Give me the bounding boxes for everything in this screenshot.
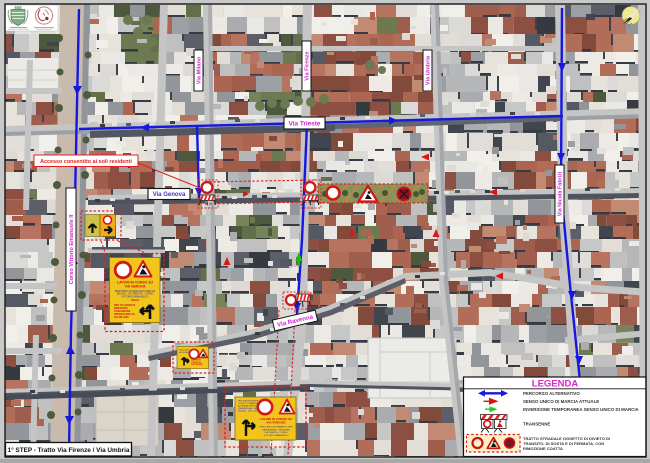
svg-text:VIA RAVENNA - VIA MILANO: VIA RAVENNA - VIA MILANO — [262, 428, 291, 431]
svg-text:Accesso consentito ai soli res: Accesso consentito ai soli residenti — [40, 159, 132, 165]
svg-text:INVERSIONE TEMPORANEA SENSO UN: INVERSIONE TEMPORANEA SENSO UNICO DI MAR… — [523, 407, 640, 412]
svg-text:VITTORIO EMANUELE II: VITTORIO EMANUELE II — [264, 434, 289, 437]
svg-text:1° STEP - Tratto Via Firenze /: 1° STEP - Tratto Via Firenze / Via Umbri… — [8, 446, 130, 454]
svg-text:VITTORIO EMANUELE II: VITTORIO EMANUELE II — [121, 295, 148, 298]
svg-text:RIMOZIONE COATTA: RIMOZIONE COATTA — [523, 446, 563, 451]
svg-text:Via Umbria: Via Umbria — [426, 55, 432, 85]
svg-text:VIA MILANO: VIA MILANO — [114, 316, 129, 319]
svg-text:VIA GENOVA: VIA GENOVA — [125, 284, 146, 288]
svg-text:VIA TRIESTE - CORSO: VIA TRIESTE - CORSO — [264, 431, 287, 434]
svg-text:TRANSENNE: TRANSENNE — [523, 422, 550, 427]
svg-text:Via Trieste: Via Trieste — [289, 120, 321, 127]
svg-text:SEGUI: SEGUI — [131, 298, 139, 302]
svg-text:VIA FIRENZE: VIA FIRENZE — [266, 421, 285, 425]
svg-text:SENSO UNICO DI MARCIA ATTUALE: SENSO UNICO DI MARCIA ATTUALE — [523, 399, 599, 404]
svg-text:PERCORSO ALTERNATIVO PER: PERCORSO ALTERNATIVO PER — [260, 426, 293, 429]
svg-text:Via Genova: Via Genova — [153, 192, 186, 198]
svg-text:VIA FIRENZE: VIA FIRENZE — [191, 363, 203, 366]
svg-text:PERCORSO ALTERNATIVO: PERCORSO ALTERNATIVO — [523, 391, 580, 396]
svg-text:Via Firenze: Via Firenze — [305, 51, 311, 80]
svg-text:Corso Vittorio Emanuele II: Corso Vittorio Emanuele II — [69, 214, 75, 284]
svg-text:MILANO - VIA CONTE: MILANO - VIA CONTE — [238, 410, 260, 413]
svg-text:Via Nicola Fabrizi: Via Nicola Fabrizi — [557, 171, 563, 216]
svg-text:Via Milano: Via Milano — [197, 56, 203, 84]
svg-text:LEGENDA: LEGENDA — [532, 379, 579, 390]
